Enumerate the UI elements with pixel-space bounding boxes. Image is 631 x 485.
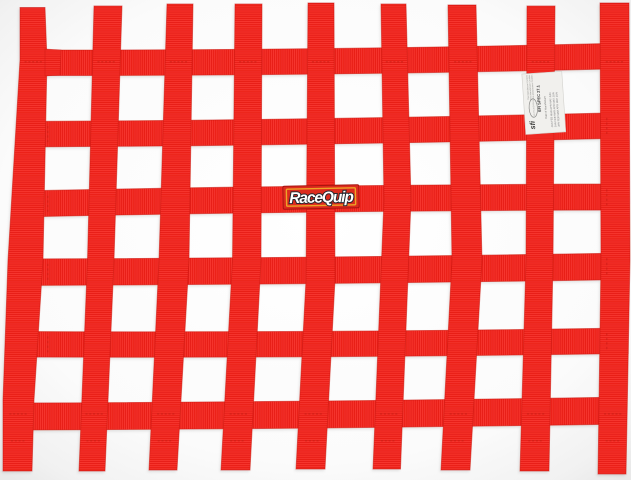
svg-text:RaceQuip: RaceQuip bbox=[289, 189, 354, 207]
